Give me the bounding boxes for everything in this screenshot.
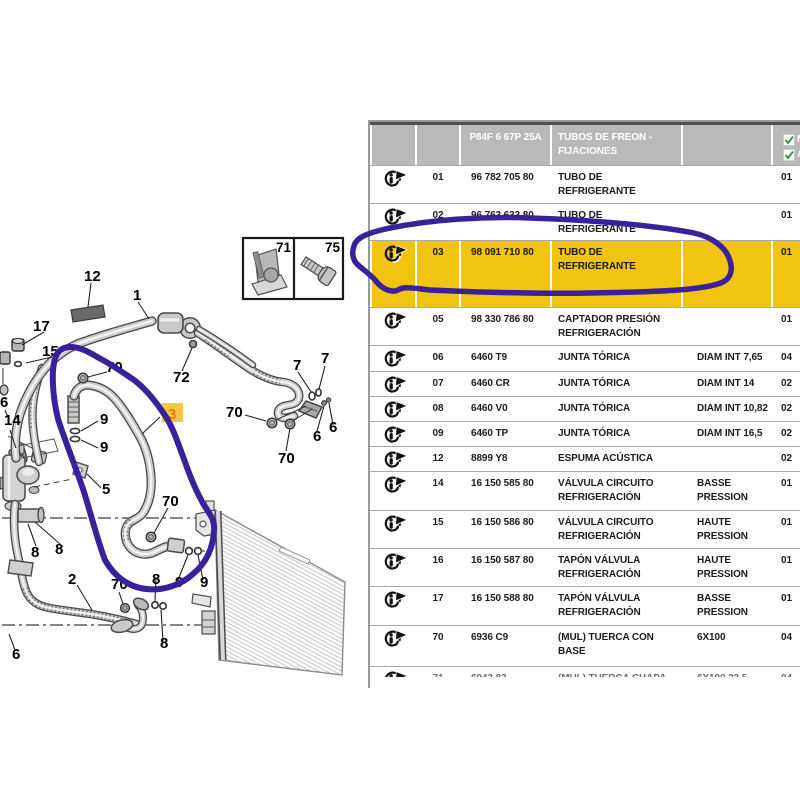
svg-text:70: 70 [278, 450, 295, 467]
svg-text:9: 9 [175, 574, 183, 591]
svg-text:6: 6 [0, 394, 8, 411]
svg-text:9: 9 [100, 439, 108, 456]
svg-text:9: 9 [100, 411, 108, 428]
svg-text:1: 1 [133, 287, 141, 304]
svg-text:5: 5 [102, 481, 110, 498]
svg-text:2: 2 [68, 571, 76, 588]
svg-text:14: 14 [4, 412, 21, 429]
svg-text:8: 8 [160, 635, 168, 652]
svg-text:70: 70 [111, 576, 128, 593]
svg-text:6: 6 [313, 428, 321, 445]
svg-text:7: 7 [293, 357, 301, 374]
svg-text:72: 72 [173, 369, 190, 386]
svg-text:12: 12 [84, 268, 101, 285]
svg-text:70: 70 [226, 404, 243, 421]
svg-text:6: 6 [12, 646, 20, 663]
svg-text:70: 70 [162, 493, 179, 510]
svg-text:15: 15 [42, 343, 59, 360]
svg-text:8: 8 [31, 544, 39, 561]
svg-text:70: 70 [106, 359, 123, 376]
svg-text:8: 8 [55, 541, 63, 558]
svg-text:7: 7 [321, 350, 329, 367]
svg-text:71: 71 [276, 240, 292, 255]
svg-text:9: 9 [200, 574, 208, 591]
svg-text:3: 3 [168, 406, 176, 423]
svg-text:17: 17 [33, 318, 50, 335]
svg-text:6: 6 [329, 419, 337, 436]
svg-text:75: 75 [325, 240, 341, 255]
svg-text:8: 8 [152, 571, 160, 588]
